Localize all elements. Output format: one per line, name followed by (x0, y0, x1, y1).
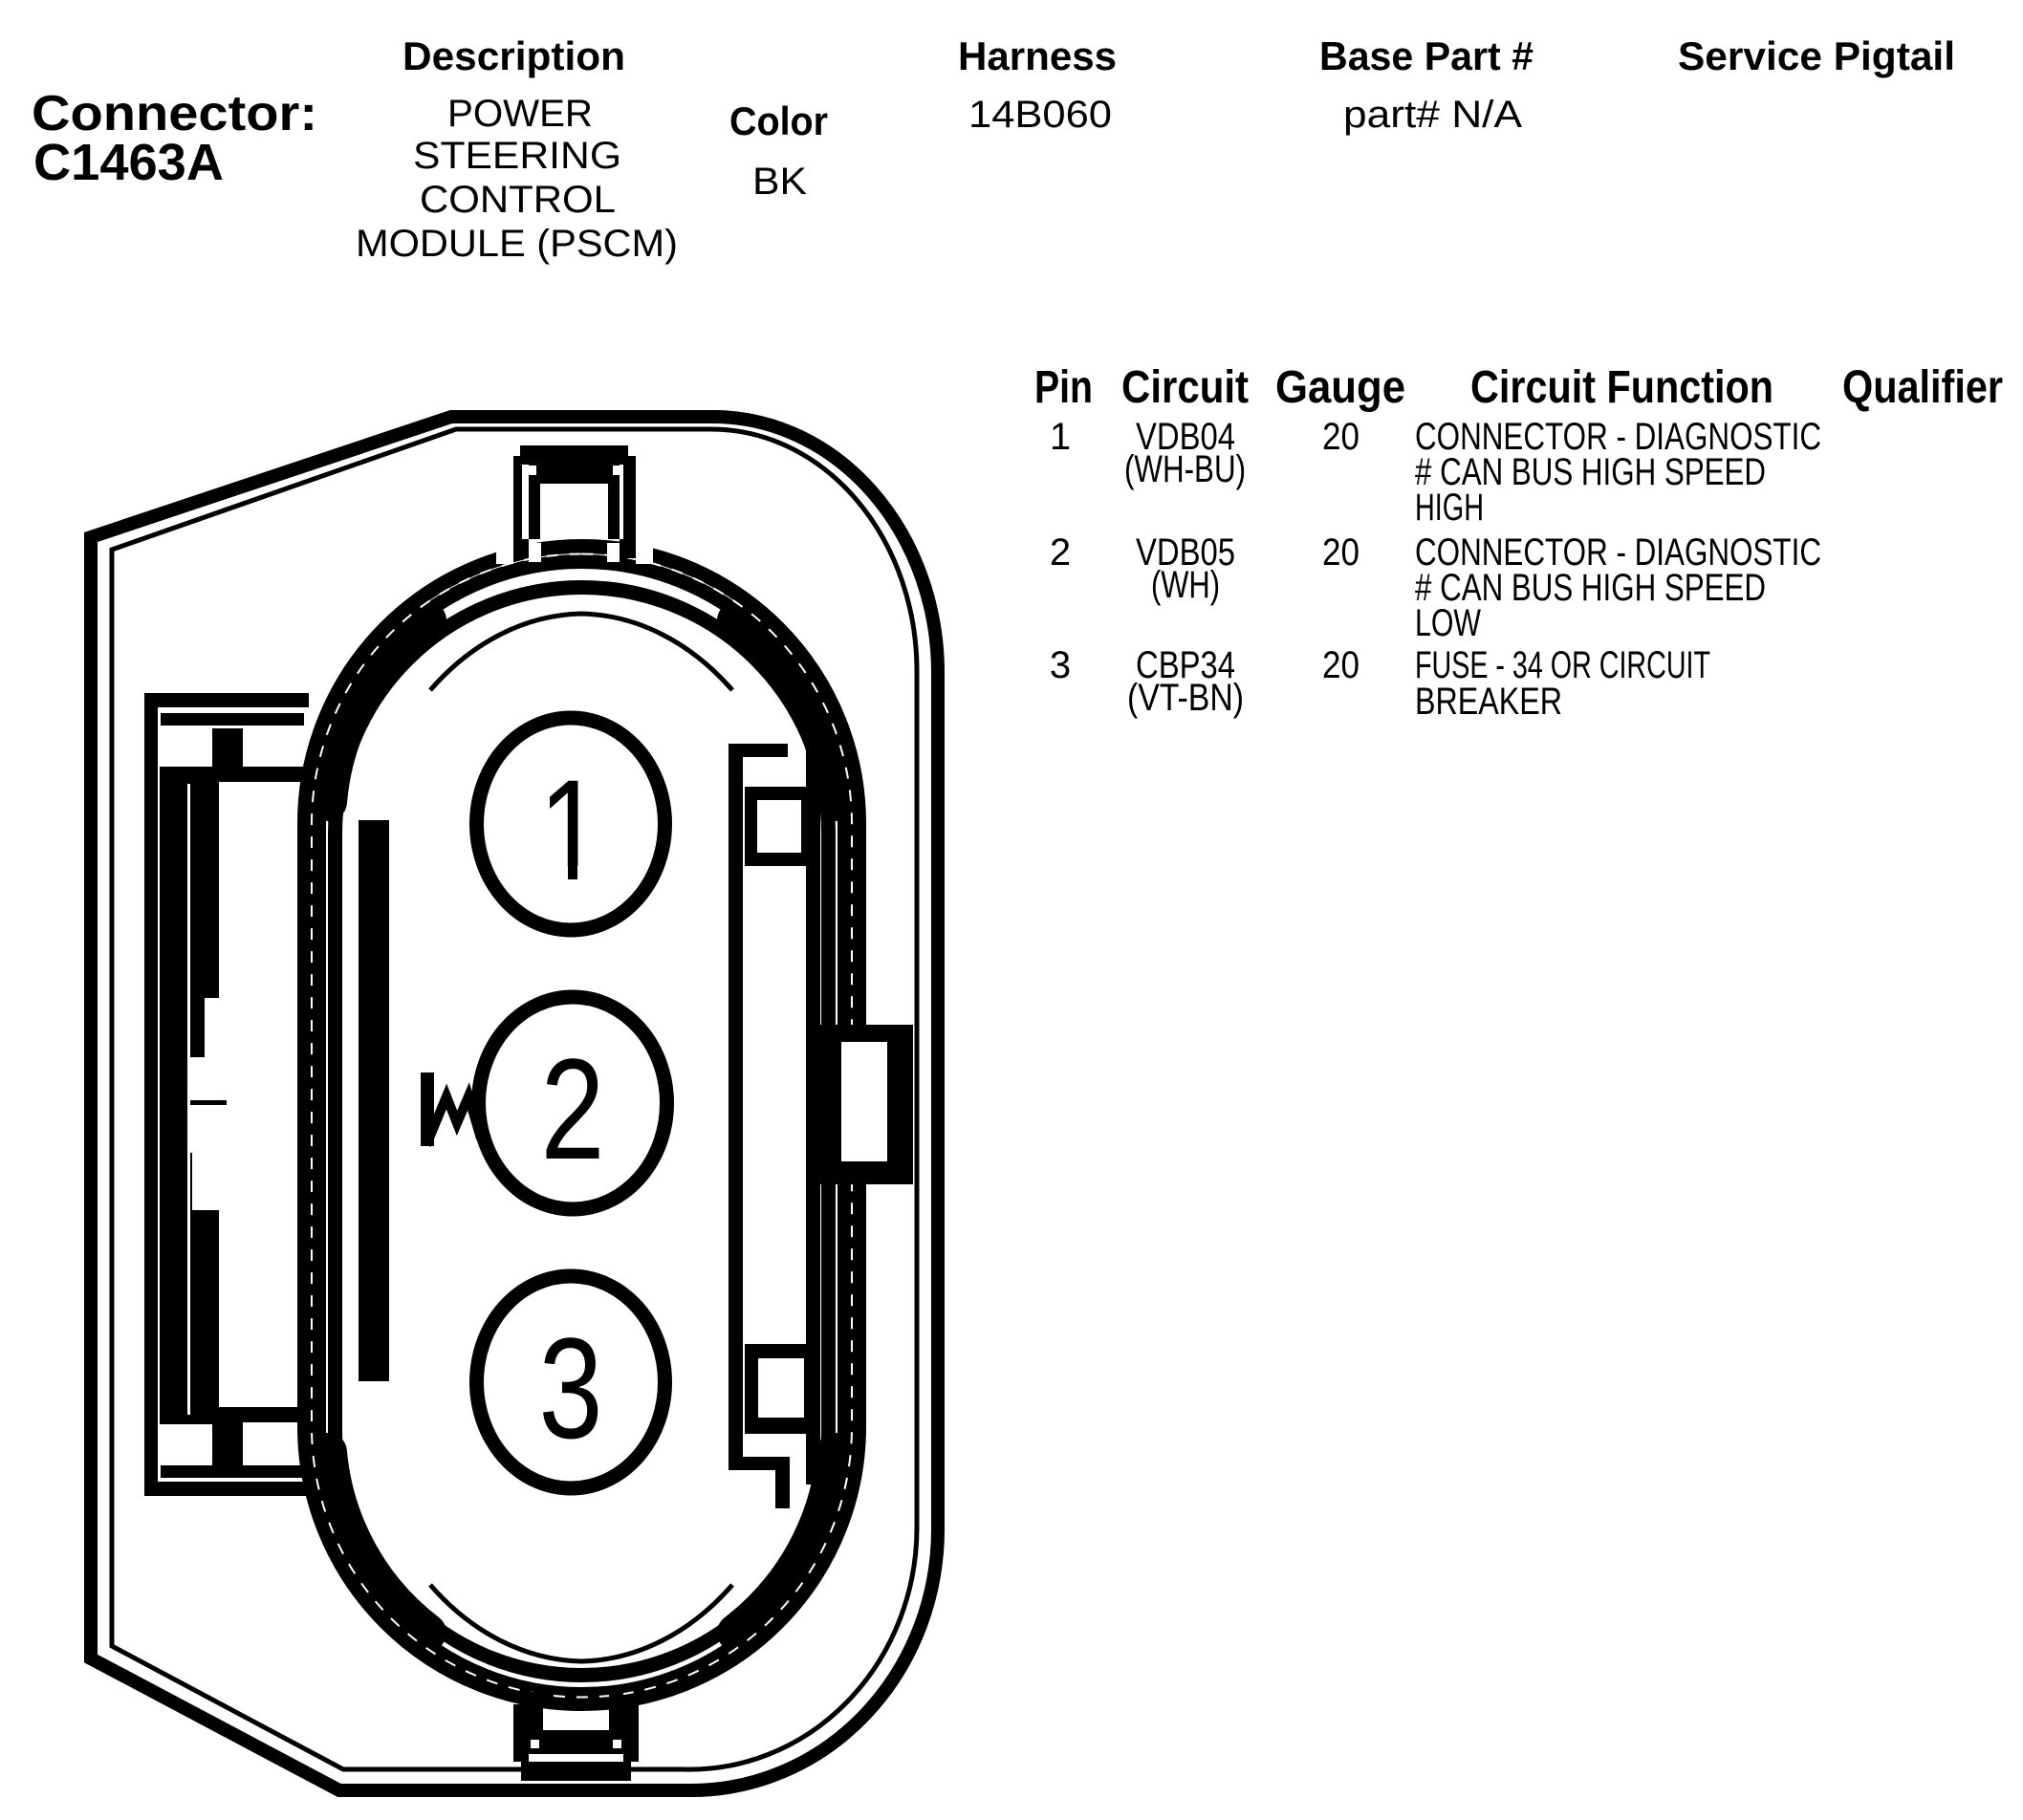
svg-text:C1463A: C1463A (33, 134, 224, 191)
svg-text:3: 3 (539, 1308, 603, 1468)
svg-text:20: 20 (1322, 644, 1360, 686)
svg-text:Circuit Function: Circuit Function (1470, 362, 1773, 413)
svg-text:Circuit: Circuit (1121, 362, 1249, 413)
svg-text:Pin: Pin (1034, 362, 1093, 413)
svg-text:Gauge: Gauge (1275, 362, 1405, 413)
svg-text:(VT-BN): (VT-BN) (1127, 677, 1244, 719)
svg-text:Description: Description (402, 33, 625, 78)
svg-text:20: 20 (1322, 416, 1360, 458)
svg-text:Harness: Harness (958, 33, 1117, 78)
svg-text:Qualifier: Qualifier (1842, 362, 2003, 413)
svg-text:(WH): (WH) (1151, 564, 1220, 606)
svg-text:BREAKER: BREAKER (1415, 681, 1562, 723)
svg-text:Color: Color (729, 98, 828, 143)
svg-text:part# N/A: part# N/A (1343, 94, 1522, 136)
svg-text:1: 1 (1050, 416, 1071, 458)
svg-text:Service Pigtail: Service Pigtail (1678, 33, 1955, 78)
svg-text:Base Part #: Base Part # (1319, 33, 1534, 78)
svg-text:STEERING: STEERING (413, 135, 621, 177)
svg-text:BK: BK (752, 161, 807, 203)
svg-text:1: 1 (539, 749, 603, 910)
svg-text:20: 20 (1322, 531, 1360, 574)
svg-text:2: 2 (1050, 531, 1071, 574)
svg-text:CONTROL: CONTROL (420, 179, 616, 221)
svg-text:14B060: 14B060 (968, 94, 1112, 136)
svg-text:MODULE (PSCM): MODULE (PSCM) (356, 223, 678, 265)
svg-text:3: 3 (1050, 644, 1071, 686)
svg-text:2: 2 (541, 1029, 605, 1189)
svg-text:HIGH: HIGH (1415, 487, 1484, 529)
svg-text:(WH-BU): (WH-BU) (1124, 448, 1246, 490)
svg-text:POWER: POWER (447, 93, 593, 135)
svg-text:LOW: LOW (1415, 602, 1481, 644)
